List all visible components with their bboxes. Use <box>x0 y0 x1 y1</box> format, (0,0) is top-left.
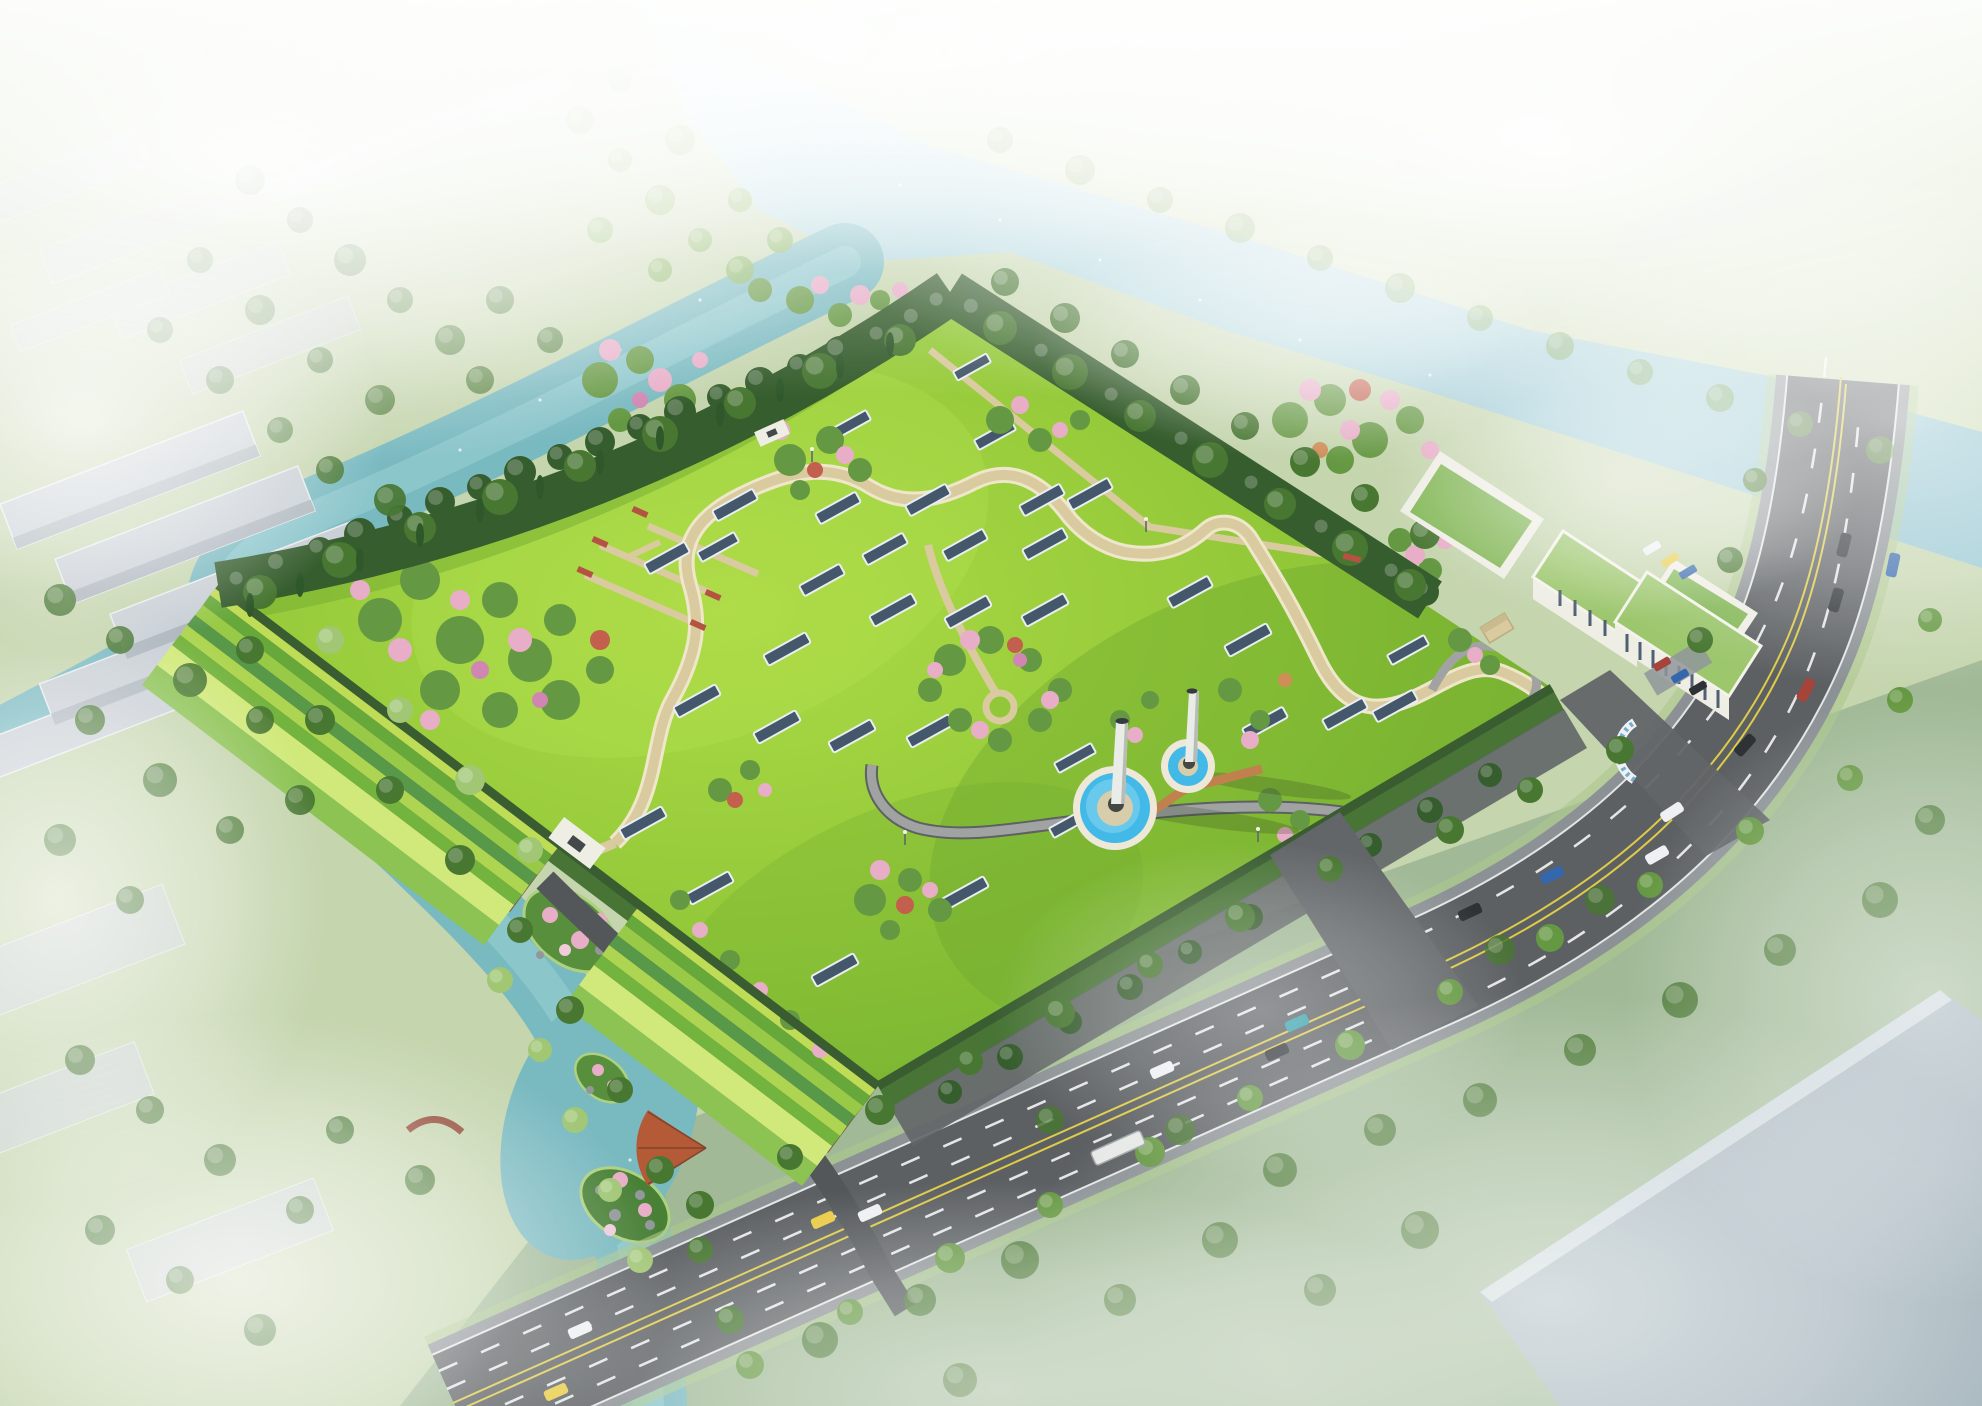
scene-canvas <box>0 0 1982 1406</box>
aerial-rendering <box>0 0 1982 1406</box>
fog-layer <box>0 0 1982 1406</box>
haze-veil <box>0 0 1982 1406</box>
